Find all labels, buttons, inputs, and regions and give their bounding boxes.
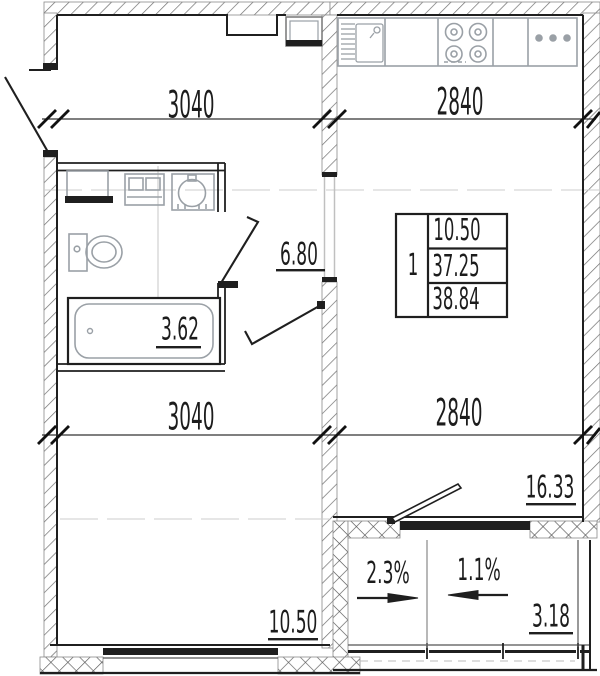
area-hallway: 6.80 — [280, 240, 318, 271]
area-kitchen-living: 16.33 — [526, 473, 575, 504]
stove-burners-icon — [444, 24, 487, 63]
washing-machine-icon — [65, 171, 113, 203]
dim-mid-right: 2840 — [435, 395, 482, 432]
kitchen-sink — [341, 24, 383, 62]
table-room-count: 1 — [408, 251, 419, 281]
floor-plan-drawing — [0, 0, 600, 676]
washbasin-icon — [172, 174, 214, 210]
dim-top-left: 3040 — [167, 87, 214, 124]
slope-arrow-left — [448, 591, 508, 600]
dim-mid-left: 3040 — [167, 399, 214, 436]
slope-label-right: 1.1% — [457, 556, 500, 586]
kitchen-counter — [338, 18, 577, 66]
area-balcony: 3.18 — [532, 602, 570, 633]
central-doorway-jambs — [325, 177, 335, 277]
toilet-icon — [69, 234, 122, 271]
dim-top-right: 2840 — [436, 84, 483, 121]
vent-duct — [286, 17, 322, 46]
area-room: 10.50 — [269, 608, 318, 639]
dimension-ticks — [38, 110, 600, 444]
slope-arrow-right — [357, 594, 418, 603]
dimension-lines — [42, 119, 596, 435]
area-bathroom: 3.62 — [159, 315, 200, 346]
table-living-area: 10.50 — [433, 216, 480, 246]
worktop-dots-icon — [535, 34, 571, 42]
table-total-area: 38.84 — [432, 285, 479, 315]
slope-label-left: 2.3% — [366, 559, 409, 589]
floor-plan: 3040 2840 3040 2840 6.80 3.62 10.50 16.3… — [0, 0, 600, 676]
table-apartment-area: 37.25 — [432, 252, 479, 282]
